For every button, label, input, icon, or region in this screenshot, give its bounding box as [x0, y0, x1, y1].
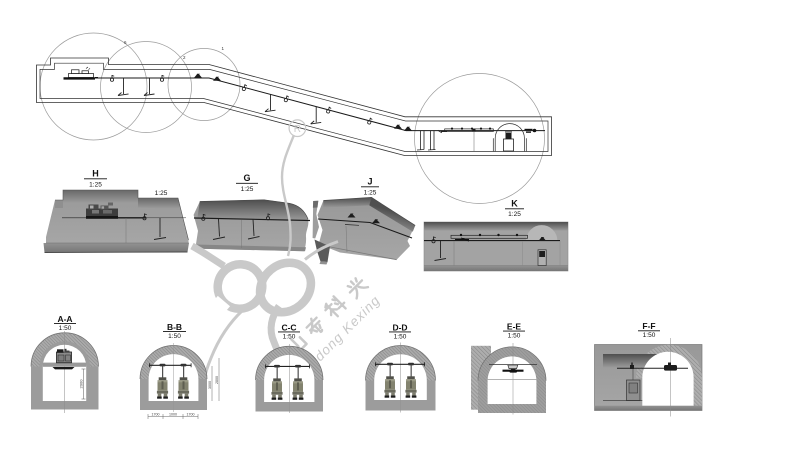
- svg-text:1:50: 1:50: [394, 333, 407, 340]
- svg-text:2800: 2800: [215, 376, 219, 384]
- svg-text:1:25: 1:25: [155, 190, 168, 197]
- svg-text:K: K: [511, 199, 518, 209]
- svg-text:1:25: 1:25: [364, 190, 377, 197]
- svg-text:R: R: [294, 124, 301, 135]
- svg-text:J: J: [367, 177, 372, 187]
- svg-text:G: G: [243, 173, 250, 183]
- svg-text:1:50: 1:50: [283, 333, 296, 340]
- svg-text:E-E: E-E: [507, 322, 522, 332]
- svg-text:1:50: 1:50: [168, 333, 181, 340]
- svg-text:3000: 3000: [208, 381, 212, 389]
- svg-text:1700: 1700: [187, 413, 195, 417]
- svg-text:1:50: 1:50: [643, 332, 656, 339]
- svg-text:1:50: 1:50: [59, 325, 72, 332]
- svg-text:2000: 2000: [79, 379, 84, 389]
- svg-text:1000: 1000: [169, 413, 177, 417]
- svg-text:1:25: 1:25: [508, 211, 521, 218]
- svg-text:C-C: C-C: [281, 322, 296, 332]
- svg-text:B-B: B-B: [167, 322, 182, 332]
- svg-text:A-A: A-A: [57, 314, 72, 324]
- svg-text:1:25: 1:25: [89, 182, 102, 189]
- svg-text:F-F: F-F: [642, 321, 655, 331]
- svg-text:H: H: [92, 169, 99, 179]
- svg-text:1:50: 1:50: [508, 333, 521, 340]
- svg-text:1:25: 1:25: [241, 186, 254, 193]
- svg-text:1700: 1700: [152, 413, 160, 417]
- svg-text:D-D: D-D: [392, 322, 407, 332]
